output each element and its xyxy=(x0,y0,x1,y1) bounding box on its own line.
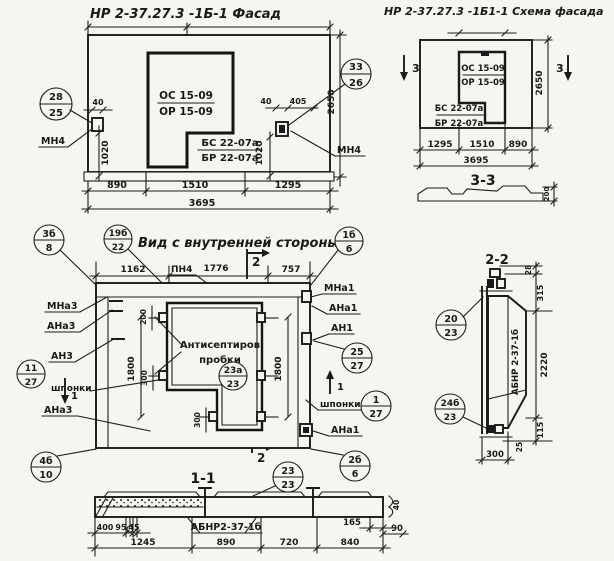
svg-text:23: 23 xyxy=(227,380,240,390)
dim-40: 40 xyxy=(392,500,401,510)
scheme-view: НР 2-37.27.3 -1Б1-1 Схема фасада ОС 15-0… xyxy=(384,5,604,206)
panel-edge-strip xyxy=(482,287,487,433)
svg-text:23: 23 xyxy=(281,480,294,491)
svg-text:АНа1: АНа1 xyxy=(329,303,357,314)
svg-text:23: 23 xyxy=(444,413,457,423)
svg-text:БС 22-07а: БС 22-07а xyxy=(435,104,484,114)
svg-text:890: 890 xyxy=(107,180,127,191)
svg-text:11: 11 xyxy=(25,364,38,374)
svg-text:ОС 15-09: ОС 15-09 xyxy=(461,64,505,74)
facade-top-dimline xyxy=(85,21,333,35)
label-ana1-2: АНа1 xyxy=(313,425,362,436)
svg-text:АН1: АН1 xyxy=(331,323,353,334)
svg-text:1510: 1510 xyxy=(469,140,494,150)
svg-text:6: 6 xyxy=(346,244,353,255)
svg-text:1776: 1776 xyxy=(203,264,228,274)
scheme-title: НР 2-37.27.3 -1Б1-1 Схема фасада xyxy=(384,5,604,18)
facade-title: НР 2-37.27.3 -1Б-1 Фасад xyxy=(90,7,281,22)
svg-text:1б: 1б xyxy=(342,230,356,241)
callout-4b-10: 4б 10 xyxy=(31,449,96,482)
s11-dims-right: 165 90 xyxy=(343,517,408,537)
svg-text:315: 315 xyxy=(536,284,545,301)
svg-text:40: 40 xyxy=(260,97,272,106)
callout-25-27: 25 27 xyxy=(314,341,372,373)
scheme-dim-200: 200 xyxy=(543,182,557,206)
svg-text:27: 27 xyxy=(369,409,382,420)
svg-text:1800: 1800 xyxy=(127,356,137,381)
facade-view: НР 2-37.27.3 -1Б-1 Фасад ОС 15-09 ОР 15-… xyxy=(39,7,371,213)
scheme-section3-left: 3 xyxy=(400,56,420,81)
svg-text:10: 10 xyxy=(39,470,53,481)
svg-text:840: 840 xyxy=(341,538,360,548)
inner-view: Вид с внутренней стороны 19б 22 3б 8 1б … xyxy=(17,225,391,482)
label-mn4-left: МН4 xyxy=(39,129,92,147)
svg-text:АНа3: АНа3 xyxy=(44,405,72,416)
svg-text:45: 45 xyxy=(128,523,140,532)
label-shponki-right: шпонки xyxy=(306,400,361,410)
svg-text:1510: 1510 xyxy=(182,180,209,191)
svg-text:28: 28 xyxy=(524,265,533,275)
callout-1-27: 1 27 xyxy=(361,391,391,421)
callout-20-23: 20 23 xyxy=(436,297,483,340)
svg-text:115: 115 xyxy=(536,421,545,438)
section-2-2: 2-2 АБНР 2-37-1б 20 23 24б 23 28 315 222… xyxy=(435,253,552,464)
svg-text:шпонки: шпонки xyxy=(320,400,361,410)
scheme-dim-2650: 2650 xyxy=(532,36,552,132)
svg-text:БР 22-07а: БР 22-07а xyxy=(201,153,258,164)
svg-text:1295: 1295 xyxy=(427,140,452,150)
svg-text:27: 27 xyxy=(25,378,38,388)
svg-text:890: 890 xyxy=(217,538,236,548)
callout-28-25: 28 25 xyxy=(40,88,92,123)
label-mna1: МНа1 xyxy=(311,283,356,297)
section-1-1-title: 1-1 xyxy=(190,471,215,487)
drawing-canvas: НР 2-37.27.3 -1Б-1 Фасад ОС 15-09 ОР 15-… xyxy=(0,0,614,561)
svg-text:24б: 24б xyxy=(441,398,460,409)
svg-text:1020: 1020 xyxy=(101,140,111,165)
svg-text:1: 1 xyxy=(373,395,380,406)
s11-dims-left: 400 95 45 xyxy=(88,517,150,556)
svg-text:2650: 2650 xyxy=(327,89,337,114)
svg-text:БС 22-07а: БС 22-07а xyxy=(201,138,258,149)
svg-text:25: 25 xyxy=(350,347,363,358)
label-an1: АН1 xyxy=(313,323,354,340)
svg-text:28: 28 xyxy=(49,92,63,103)
callout-2b-6: 2б 6 xyxy=(311,449,370,481)
svg-text:23а: 23а xyxy=(224,366,243,376)
svg-text:405: 405 xyxy=(290,97,307,106)
svg-text:МН4: МН4 xyxy=(337,145,361,156)
cut-1-right-marker: 1 xyxy=(326,370,344,393)
svg-text:23: 23 xyxy=(444,328,457,339)
svg-text:890: 890 xyxy=(509,140,528,150)
svg-text:2: 2 xyxy=(252,255,260,269)
callout-3b-8: 3б 8 xyxy=(34,225,96,285)
scheme-section3-right: 3 xyxy=(556,56,572,81)
svg-text:ОС 15-09: ОС 15-09 xyxy=(159,90,213,102)
svg-text:МНа1: МНа1 xyxy=(324,283,354,294)
svg-text:720: 720 xyxy=(280,538,299,548)
blueprint-sheet: НР 2-37.27.3 -1Б-1 Фасад ОС 15-09 ОР 15-… xyxy=(0,0,614,561)
panel-top-node xyxy=(480,269,512,291)
beam-concrete-hatch xyxy=(97,499,203,507)
svg-text:МН4: МН4 xyxy=(41,136,65,147)
svg-text:АНа3: АНа3 xyxy=(47,321,75,332)
svg-text:2650: 2650 xyxy=(535,70,545,95)
svg-text:3: 3 xyxy=(556,62,564,75)
svg-text:22: 22 xyxy=(112,243,125,253)
svg-text:300: 300 xyxy=(193,412,202,428)
s11-beam-mark: АБНР2-37-1б xyxy=(188,518,262,533)
svg-text:33: 33 xyxy=(349,62,363,73)
svg-text:ОР 15-09: ОР 15-09 xyxy=(159,106,213,118)
svg-text:АНа1: АНа1 xyxy=(331,425,359,436)
callout-24b-23: 24б 23 xyxy=(435,394,486,428)
panel-mark: АБНР 2-37-1б xyxy=(510,329,521,395)
svg-text:1020: 1020 xyxy=(255,140,265,165)
svg-text:200: 200 xyxy=(543,187,551,202)
svg-text:23: 23 xyxy=(281,466,294,477)
svg-text:2б: 2б xyxy=(348,455,362,466)
inner-title: Вид с внутренней стороны xyxy=(138,236,339,251)
svg-text:1800: 1800 xyxy=(274,356,284,381)
svg-text:8: 8 xyxy=(46,243,53,254)
svg-text:1: 1 xyxy=(337,382,344,393)
label-ana1-1: АНа1 xyxy=(312,303,360,314)
cut-2-top-marker: 2 xyxy=(247,249,270,278)
svg-text:4б: 4б xyxy=(39,456,53,467)
svg-text:МНа3: МНа3 xyxy=(47,301,77,312)
svg-text:АБНР2-37-1б: АБНР2-37-1б xyxy=(191,522,262,533)
callout-11-27: 11 27 xyxy=(17,360,45,388)
callout-19b-22: 19б 22 xyxy=(104,225,163,284)
svg-text:300: 300 xyxy=(486,450,504,460)
svg-text:25: 25 xyxy=(515,442,524,452)
svg-text:90: 90 xyxy=(391,524,403,534)
svg-text:2: 2 xyxy=(257,451,265,465)
callout-23a-23: 23а 23 xyxy=(219,362,247,390)
svg-text:ОР 15-09: ОР 15-09 xyxy=(461,78,505,88)
svg-text:3695: 3695 xyxy=(189,198,215,209)
svg-text:26: 26 xyxy=(349,78,363,89)
anchor-right-core xyxy=(279,125,285,133)
anchor-left xyxy=(92,118,103,131)
section-3-3-label: 3-3 xyxy=(470,173,495,189)
svg-text:165: 165 xyxy=(343,518,361,528)
svg-text:25: 25 xyxy=(49,108,63,119)
svg-text:3695: 3695 xyxy=(463,156,488,166)
svg-text:Антисептиров: Антисептиров xyxy=(180,340,260,351)
svg-text:400: 400 xyxy=(97,523,114,532)
svg-text:6: 6 xyxy=(352,469,359,480)
svg-text:АН3: АН3 xyxy=(51,351,73,362)
svg-text:40: 40 xyxy=(92,98,104,107)
svg-text:19б: 19б xyxy=(109,228,128,239)
svg-text:757: 757 xyxy=(282,265,301,275)
svg-text:ПН4: ПН4 xyxy=(171,265,192,275)
svg-text:2220: 2220 xyxy=(540,352,550,377)
svg-text:20: 20 xyxy=(444,314,458,325)
svg-text:95: 95 xyxy=(115,523,127,532)
svg-text:3б: 3б xyxy=(42,229,56,240)
scheme-top-marks xyxy=(448,30,516,36)
svg-text:1295: 1295 xyxy=(275,180,301,191)
scheme-bottom-dims: 1295 1510 890 3695 xyxy=(414,123,538,169)
svg-text:3: 3 xyxy=(412,62,420,75)
svg-text:1: 1 xyxy=(71,391,78,402)
svg-text:1245: 1245 xyxy=(130,538,155,548)
callout-23-23: 23 23 xyxy=(253,462,303,496)
svg-text:1162: 1162 xyxy=(120,265,145,275)
scheme-notch xyxy=(481,52,489,56)
label-pn4: ПН4 xyxy=(168,265,208,284)
svg-text:27: 27 xyxy=(350,361,363,372)
